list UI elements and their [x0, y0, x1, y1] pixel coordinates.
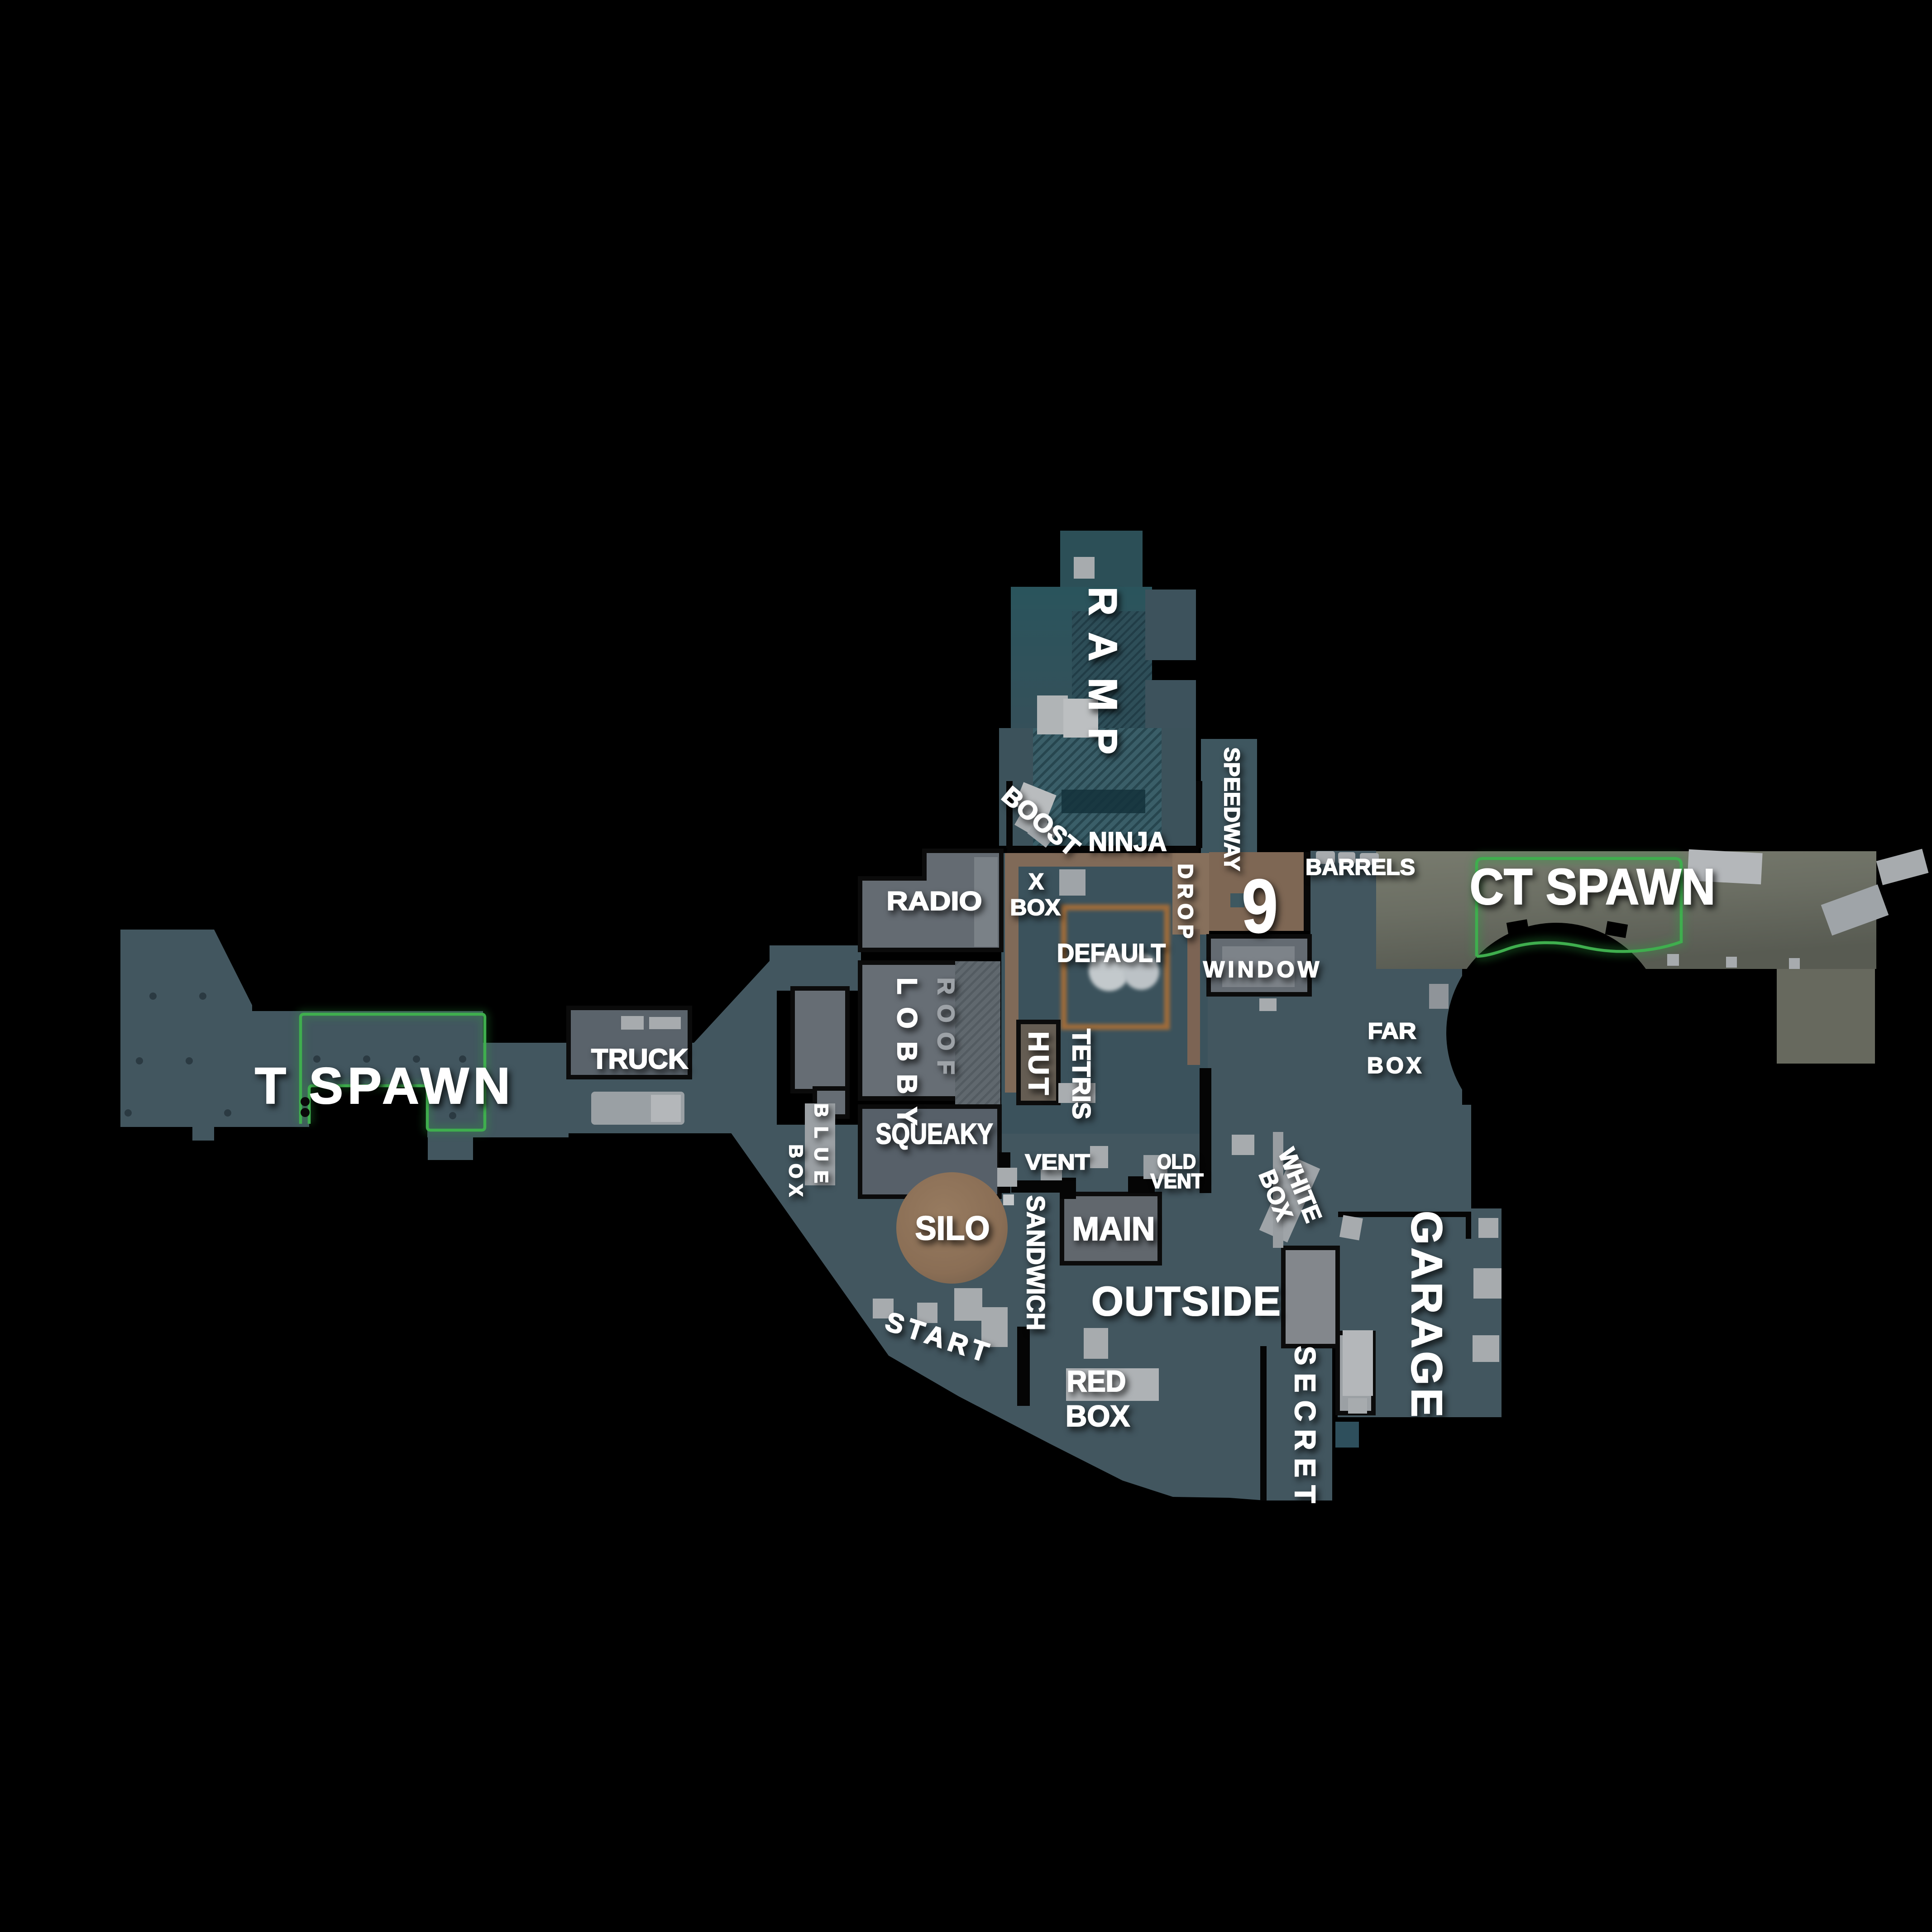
svg-text:X: X	[1028, 869, 1043, 894]
svg-text:HUT: HUT	[1023, 1031, 1054, 1095]
svg-text:WINDOW: WINDOW	[1203, 957, 1320, 982]
svg-text:SILO: SILO	[915, 1209, 990, 1247]
svg-text:MAIN: MAIN	[1072, 1211, 1155, 1247]
svg-text:VENT: VENT	[1151, 1170, 1204, 1193]
svg-text:TETRIS: TETRIS	[1067, 1029, 1096, 1119]
svg-text:SPEEDWAY: SPEEDWAY	[1219, 748, 1243, 871]
svg-text:CT SPAWN: CT SPAWN	[1470, 858, 1716, 915]
svg-text:VENT: VENT	[1025, 1151, 1090, 1175]
svg-text:FAR: FAR	[1368, 1018, 1416, 1044]
svg-text:BOX: BOX	[1066, 1399, 1130, 1433]
svg-text:TRUCK: TRUCK	[591, 1044, 688, 1075]
svg-text:SANDWICH: SANDWICH	[1022, 1195, 1050, 1330]
svg-text:NINJA: NINJA	[1089, 827, 1167, 857]
svg-text:BOX: BOX	[1367, 1053, 1421, 1078]
svg-text:BOX: BOX	[1010, 895, 1061, 920]
svg-text:RED: RED	[1067, 1364, 1126, 1398]
svg-text:DEFAULT: DEFAULT	[1057, 939, 1166, 968]
svg-text:9: 9	[1242, 863, 1278, 949]
svg-text:RADIO: RADIO	[887, 887, 982, 916]
svg-text:BARRELS: BARRELS	[1306, 854, 1415, 880]
svg-text:BOX: BOX	[785, 1145, 807, 1197]
